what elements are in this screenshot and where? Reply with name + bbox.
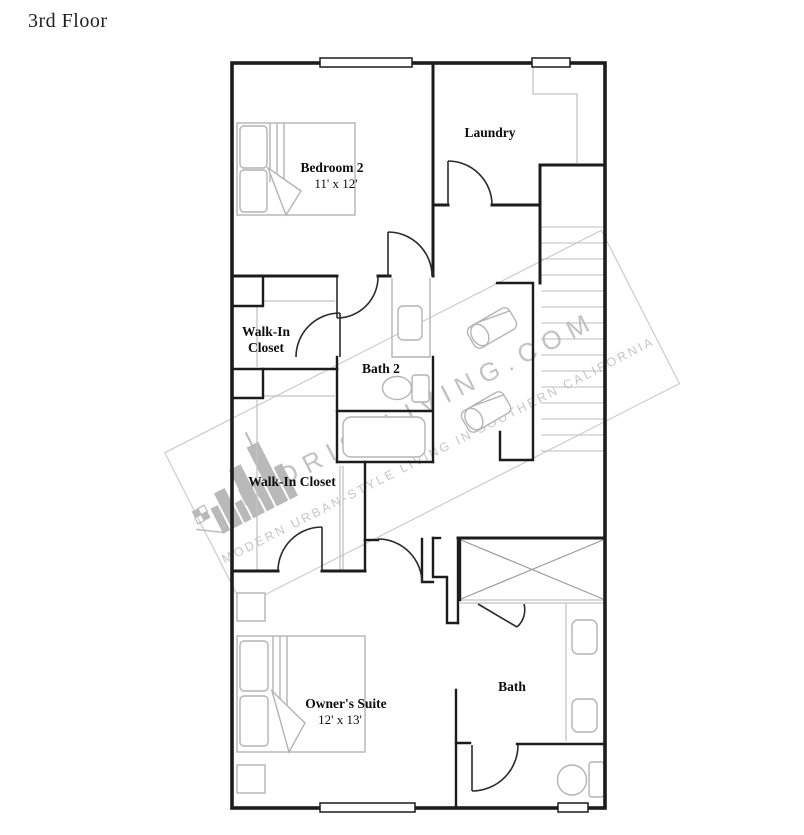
bed-icon xyxy=(237,636,365,752)
bifold-door xyxy=(478,604,525,627)
room-label-bedroom2: Bedroom 2 xyxy=(300,160,363,175)
room-label-bath2: Bath 2 xyxy=(362,361,400,376)
door-arc xyxy=(378,539,422,583)
room-label-laundry: Laundry xyxy=(464,125,515,140)
stairs xyxy=(541,227,604,451)
window xyxy=(558,803,588,812)
room-dims-owners-suite: 12' x 13' xyxy=(318,712,362,727)
floor-plan-page: 3rd Floor MIDRISELIVING.COM MODERN URBAN… xyxy=(0,0,804,835)
vanity-sink-icon xyxy=(566,603,597,741)
door-arc xyxy=(472,745,518,791)
toilet-icon xyxy=(383,375,430,402)
room-label-walk-in-closet-upper: Closet xyxy=(248,340,284,355)
floor-plan-canvas: 3rd Floor MIDRISELIVING.COM MODERN URBAN… xyxy=(0,0,804,835)
page-title: 3rd Floor xyxy=(28,10,108,32)
toilet-icon xyxy=(558,762,605,797)
bathtub-icon xyxy=(343,417,425,457)
room-label-walk-in-closet-lower: Walk-In Closet xyxy=(248,474,336,489)
door-arc xyxy=(388,232,432,276)
room-dims-bedroom2: 11' x 12' xyxy=(314,176,357,191)
laundry-counter xyxy=(533,64,577,163)
door-arc xyxy=(448,161,492,205)
window xyxy=(532,58,570,67)
nightstand-icon xyxy=(237,765,265,793)
door-arc xyxy=(296,313,340,357)
room-label-bath: Bath xyxy=(498,679,526,694)
room-label-walk-in-closet-upper: Walk-In xyxy=(242,324,291,339)
window xyxy=(320,803,415,812)
vanity-sink-icon xyxy=(392,278,430,357)
door-arc xyxy=(337,277,378,318)
room-label-owners-suite: Owner's Suite xyxy=(305,696,386,711)
nightstand-icon xyxy=(237,593,265,621)
window xyxy=(320,58,412,67)
